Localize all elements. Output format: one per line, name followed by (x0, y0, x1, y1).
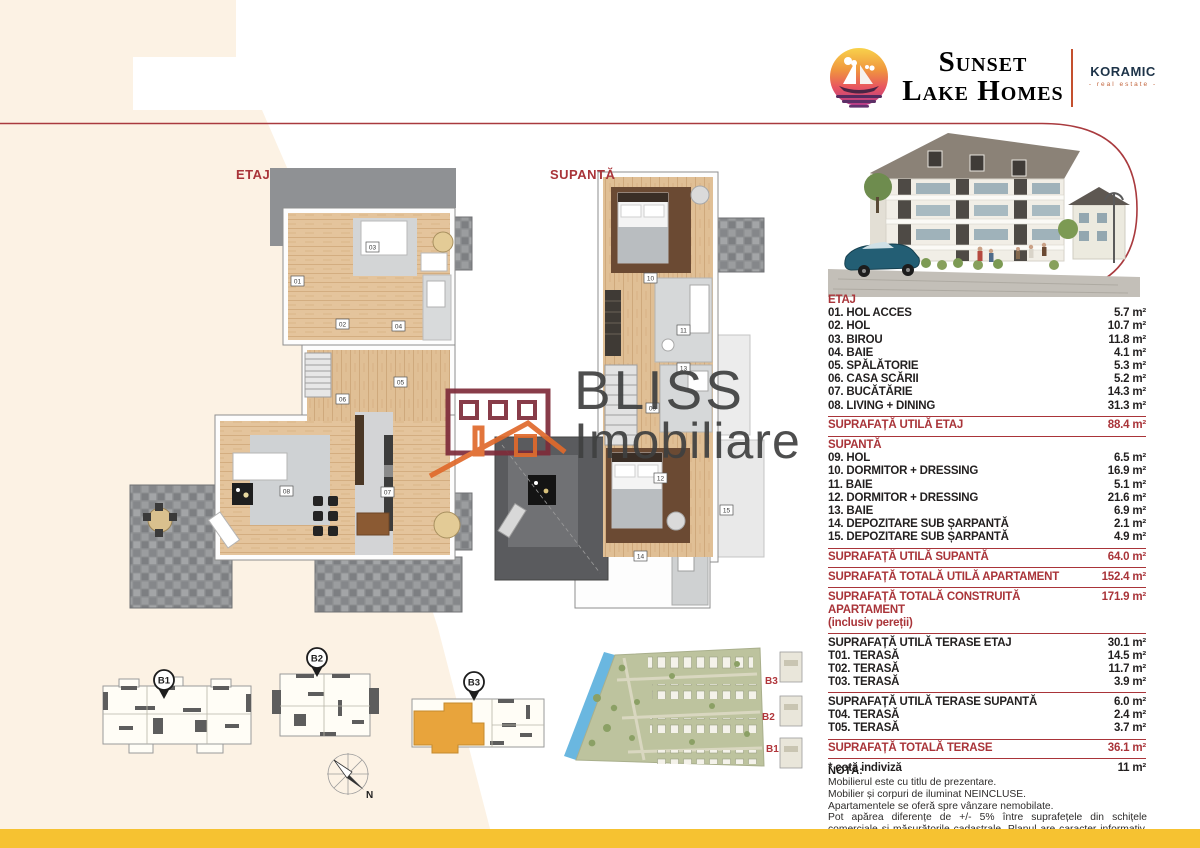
supanta-plan-label: SUPANTĂ (550, 167, 615, 182)
location-pin-b3: B3 (460, 670, 488, 704)
supanta-table-header: SUPANTĂ (828, 439, 1146, 452)
svg-text:04: 04 (395, 324, 403, 331)
row-value: 2.4 m² (1108, 709, 1146, 722)
row-label: T04. TERASĂ (828, 709, 899, 722)
etaj-total-row: SUPRAFAȚĂ UTILĂ ETAJ88.4 m² (828, 419, 1146, 432)
location-pin-b2: B2 (303, 646, 331, 680)
svg-text:02: 02 (339, 322, 347, 329)
row-label: 15. DEPOZITARE SUB ȘARPANTĂ (828, 531, 1009, 544)
table-row: T03. TERASĂ3.9 m² (828, 676, 1146, 689)
note-line: Apartamentele se oferă spre vânzare nemo… (828, 801, 1147, 813)
row-label: 13. BAIE (828, 505, 873, 518)
separator-line (828, 692, 1146, 693)
table-row: 07. BUCĂTĂRIE14.3 m² (828, 386, 1146, 399)
separator-line (828, 567, 1146, 568)
row-value: 31.3 m² (1102, 400, 1146, 413)
sunset-sailboat-logo (826, 44, 894, 112)
row-value: 30.1 m² (1102, 637, 1146, 650)
row-label: 03. BIROU (828, 334, 882, 347)
brochure-page: Sunset Lake Homes KORAMIC - real estate … (0, 0, 1200, 848)
row-label: 06. CASA SCĂRII (828, 373, 919, 386)
svg-text:10: 10 (647, 276, 655, 283)
row-label: SUPRAFAȚĂ TOTALĂ CONSTRUITĂ APARTAMENT (828, 591, 1096, 617)
table-row: 14. DEPOZITARE SUB ȘARPANTĂ2.1 m² (828, 518, 1146, 531)
row-value: 5.7 m² (1108, 307, 1146, 320)
row-value: 5.3 m² (1108, 360, 1146, 373)
row-value: 6.9 m² (1108, 505, 1146, 518)
table-row: T05. TERASĂ3.7 m² (828, 722, 1146, 735)
row-label: T03. TERASĂ (828, 676, 899, 689)
row-value: 152.4 m² (1096, 571, 1146, 584)
row-label: SUPRAFAȚĂ UTILĂ TERASE ETAJ (828, 637, 1012, 650)
row-value: 3.7 m² (1108, 722, 1146, 735)
svg-text:01: 01 (294, 279, 302, 286)
row-sublabel: (inclusiv pereții) (828, 617, 1096, 630)
row-value: 3.9 m² (1108, 676, 1146, 689)
row-value: 171.9 m² (1096, 591, 1146, 604)
total-construit-row: SUPRAFAȚĂ TOTALĂ CONSTRUITĂ APARTAMENT(i… (828, 591, 1146, 631)
svg-text:08: 08 (283, 489, 291, 496)
note-line: Mobilierul este cu titlu de prezentare. (828, 777, 1147, 789)
svg-text:15: 15 (723, 508, 731, 515)
svg-text:06: 06 (339, 397, 347, 404)
row-value: 16.9 m² (1102, 465, 1146, 478)
row-value: 11.8 m² (1102, 334, 1146, 347)
area-tables: ETAJ 01. HOL ACCES5.7 m² 02. HOL10.7 m² … (828, 294, 1146, 775)
row-value: 14.5 m² (1102, 650, 1146, 663)
row-label: SUPRAFAȚĂ TOTALĂ TERASE (828, 742, 992, 755)
row-label: 07. BUCĂTĂRIE (828, 386, 912, 399)
row-label: 01. HOL ACCES (828, 307, 912, 320)
terase-total-row: SUPRAFAȚĂ TOTALĂ TERASE36.1 m² (828, 742, 1146, 755)
row-label: T05. TERASĂ (828, 722, 899, 735)
svg-text:B2: B2 (311, 654, 323, 665)
row-label: 14. DEPOZITARE SUB ȘARPANTĂ (828, 518, 1009, 531)
row-value: 21.6 m² (1102, 492, 1146, 505)
row-label: SUPRAFAȚĂ UTILĂ ETAJ (828, 419, 963, 432)
row-value: 11.7 m² (1102, 663, 1146, 676)
table-row: T04. TERASĂ2.4 m² (828, 709, 1146, 722)
svg-text:B1: B1 (158, 676, 171, 687)
table-row: 05. SPĂLĂTORIE5.3 m² (828, 360, 1146, 373)
table-row: 09. HOL6.5 m² (828, 452, 1146, 465)
note-line: Mobilier și corpuri de iluminat NEINCLUS… (828, 789, 1147, 801)
row-value: 4.1 m² (1108, 347, 1146, 360)
terase-etaj-header-row: SUPRAFAȚĂ UTILĂ TERASE ETAJ30.1 m² (828, 637, 1146, 650)
svg-text:03: 03 (369, 245, 377, 252)
supanta-total-row: SUPRAFAȚĂ UTILĂ SUPANTĂ64.0 m² (828, 551, 1146, 564)
row-label: 12. DORMITOR + DRESSING (828, 492, 978, 505)
watermark-line2: Imobiliare (574, 416, 801, 466)
row-value: 36.1 m² (1102, 742, 1146, 755)
site-label-b1: B1 (766, 744, 779, 755)
row-value: 2.1 m² (1108, 518, 1146, 531)
site-label-b3: B3 (765, 676, 778, 687)
row-value: 4.9 m² (1108, 531, 1146, 544)
separator-line (828, 416, 1146, 417)
building-rendering (828, 127, 1140, 297)
row-label: SUPRAFAȚĂ TOTALĂ UTILĂ APARTAMENT (828, 571, 1059, 584)
separator-line (828, 758, 1146, 759)
svg-text:14: 14 (637, 554, 645, 561)
separator-line (828, 633, 1146, 634)
table-row: T01. TERASĂ14.5 m² (828, 650, 1146, 663)
row-label: 10. DORMITOR + DRESSING (828, 465, 978, 478)
row-label: T02. TERASĂ (828, 663, 899, 676)
site-plan-map: B3 B2 B1 (552, 638, 807, 780)
table-row: 13. BAIE6.9 m² (828, 505, 1146, 518)
separator-line (828, 587, 1146, 588)
separator-line (828, 739, 1146, 740)
table-row: 03. BIROU11.8 m² (828, 334, 1146, 347)
row-value: 14.3 m² (1102, 386, 1146, 399)
table-row: 01. HOL ACCES5.7 m² (828, 307, 1146, 320)
bliss-watermark: BLISS Imobiliare (428, 368, 778, 488)
table-row: 06. CASA SCĂRII5.2 m² (828, 373, 1146, 386)
etaj-table-header: ETAJ (828, 294, 1146, 307)
note-title: NOTĂ: (828, 765, 1147, 777)
table-row: 02. HOL10.7 m² (828, 320, 1146, 333)
table-row: 11. BAIE5.1 m² (828, 479, 1146, 492)
watermark-line1: BLISS (574, 364, 801, 416)
table-row: 15. DEPOZITARE SUB ȘARPANTĂ4.9 m² (828, 531, 1146, 544)
table-row: T02. TERASĂ11.7 m² (828, 663, 1146, 676)
total-util-row: SUPRAFAȚĂ TOTALĂ UTILĂ APARTAMENT152.4 m… (828, 571, 1146, 584)
separator-line (828, 548, 1146, 549)
svg-text:07: 07 (384, 490, 392, 497)
table-row: 08. LIVING + DINING31.3 m² (828, 400, 1146, 413)
terase-supanta-header-row: SUPRAFAȚĂ UTILĂ TERASE SUPANTĂ6.0 m² (828, 696, 1146, 709)
row-label: SUPRAFAȚĂ UTILĂ SUPANTĂ (828, 551, 989, 564)
row-value: 6.0 m² (1108, 696, 1146, 709)
watermark-text: BLISS Imobiliare (574, 364, 801, 466)
row-label: 02. HOL (828, 320, 870, 333)
bliss-house-icon (428, 376, 573, 486)
row-label: 04. BAIE (828, 347, 873, 360)
svg-text:N: N (366, 790, 373, 801)
row-value: 5.1 m² (1108, 479, 1146, 492)
svg-text:B3: B3 (468, 678, 480, 689)
separator-line (828, 436, 1146, 437)
table-row: 04. BAIE4.1 m² (828, 347, 1146, 360)
row-value: 64.0 m² (1102, 551, 1146, 564)
svg-text:11: 11 (680, 328, 687, 335)
location-pin-b1: B1 (150, 668, 178, 702)
svg-text:05: 05 (397, 380, 405, 387)
row-label: 09. HOL (828, 452, 870, 465)
row-label: 11. BAIE (828, 479, 872, 492)
row-label: 08. LIVING + DINING (828, 400, 935, 413)
row-label: SUPRAFAȚĂ UTILĂ TERASE SUPANTĂ (828, 696, 1037, 709)
site-label-b2: B2 (762, 712, 775, 723)
row-value: 10.7 m² (1102, 320, 1146, 333)
compass-rose-icon: N (322, 748, 386, 808)
row-value: 5.2 m² (1108, 373, 1146, 386)
table-row: 12. DORMITOR + DRESSING21.6 m² (828, 492, 1146, 505)
row-label: 05. SPĂLĂTORIE (828, 360, 918, 373)
etaj-plan-label: ETAJ (236, 167, 270, 182)
row-value: 88.4 m² (1102, 419, 1146, 432)
table-row: 10. DORMITOR + DRESSING16.9 m² (828, 465, 1146, 478)
row-value: 6.5 m² (1108, 452, 1146, 465)
row-label: T01. TERASĂ (828, 650, 899, 663)
row-label-group: SUPRAFAȚĂ TOTALĂ CONSTRUITĂ APARTAMENT(i… (828, 591, 1096, 631)
footer-yellow-bar (0, 829, 1200, 848)
